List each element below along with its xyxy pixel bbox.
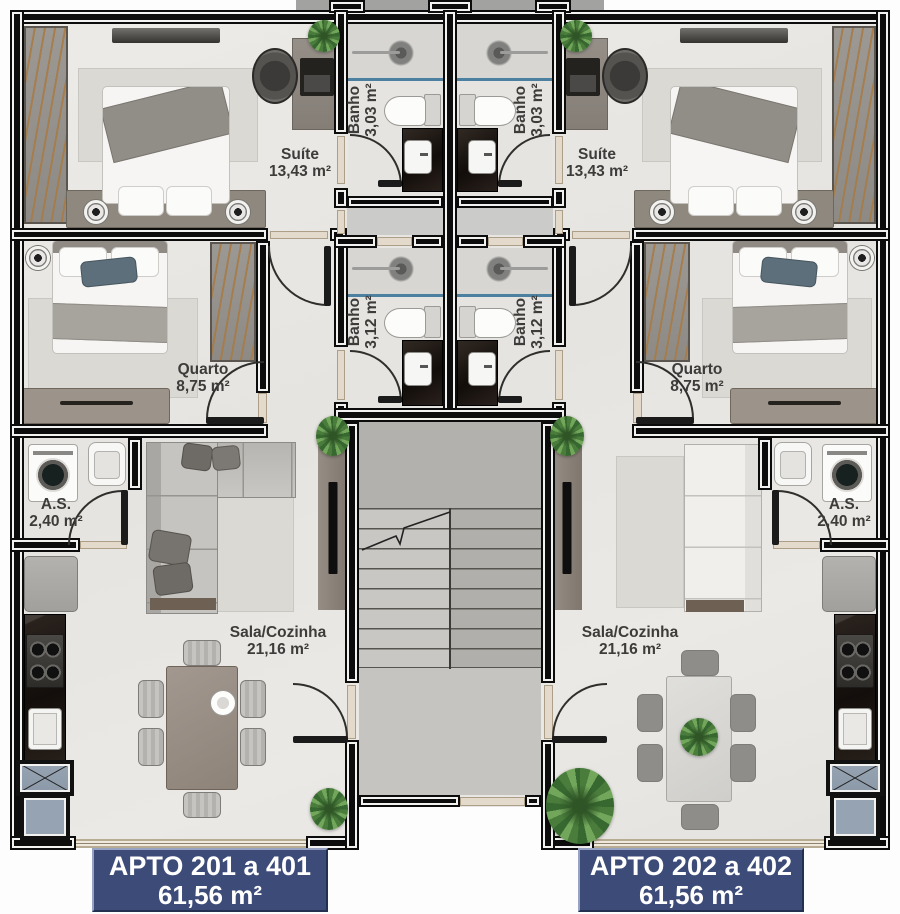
door-threshold xyxy=(572,231,630,239)
badge-area: 61,56 m² xyxy=(580,882,802,909)
door-leaf xyxy=(324,246,331,306)
wall xyxy=(552,235,566,347)
utility-shaft xyxy=(826,760,884,796)
wall xyxy=(457,235,488,248)
shower-rod xyxy=(500,51,548,54)
throw-pillow xyxy=(211,445,241,472)
door-threshold xyxy=(555,210,563,234)
room-name: Banho xyxy=(346,272,363,372)
wall xyxy=(345,740,359,850)
sofa-right xyxy=(684,444,762,612)
washing-machine xyxy=(28,444,78,502)
table-centerpiece xyxy=(210,690,236,716)
wall-shelf xyxy=(112,28,220,43)
badge-area: 61,56 m² xyxy=(94,882,326,909)
toilet-tank xyxy=(424,306,441,338)
sofa-base xyxy=(150,598,216,610)
wardrobe xyxy=(644,242,690,362)
room-label-banho2-left: Banho 3,12 m² xyxy=(346,272,386,372)
utility-shaft-window xyxy=(20,794,70,840)
shower-rod xyxy=(500,267,548,270)
dining-chair xyxy=(138,728,164,766)
wall xyxy=(334,408,566,422)
room-area: 8,75 m² xyxy=(637,378,757,395)
office-chair xyxy=(602,48,648,104)
wardrobe xyxy=(210,242,256,362)
dining-chair xyxy=(730,694,756,732)
door-leaf xyxy=(378,180,402,187)
floor-plant xyxy=(550,416,584,456)
room-label-sala-right: Sala/Cozinha 21,16 m² xyxy=(550,624,710,659)
wall xyxy=(632,228,890,241)
wall xyxy=(10,228,268,241)
floor-plan: Suíte 13,43 m² Banho 3,03 m² Banho 3,03 … xyxy=(0,0,900,914)
bathroom-sink xyxy=(404,352,432,386)
wall xyxy=(412,235,443,248)
door-leaf xyxy=(569,246,576,306)
laundry-sink xyxy=(774,442,812,486)
stair-steps-right-flight xyxy=(450,508,541,668)
bathroom-sink xyxy=(468,140,496,174)
wall xyxy=(128,438,142,490)
room-area: 3,12 m² xyxy=(529,272,546,372)
room-area: 3,03 m² xyxy=(363,60,380,160)
floor-plant xyxy=(310,788,348,830)
wall xyxy=(523,235,566,248)
kitchen-sink xyxy=(838,708,872,750)
wall xyxy=(632,424,890,438)
shower-rod xyxy=(352,267,400,270)
room-label-suite-left: Suíte 13,43 m² xyxy=(240,146,360,181)
bedside-lamp xyxy=(26,246,50,270)
pillow xyxy=(688,186,734,216)
utility-shaft-window xyxy=(830,794,880,840)
rug-living-right xyxy=(616,456,684,608)
tv-panel xyxy=(552,446,582,610)
bedside-lamp xyxy=(84,200,108,224)
washing-machine xyxy=(822,444,872,502)
bedside-lamp xyxy=(650,200,674,224)
wall xyxy=(443,10,457,412)
wall xyxy=(758,438,772,490)
room-name: Banho xyxy=(512,272,529,372)
dining-chair xyxy=(240,680,266,718)
dining-chair xyxy=(240,728,266,766)
stove-cooktop xyxy=(836,634,874,688)
blanket xyxy=(102,86,230,163)
bed-bedroom-left xyxy=(52,240,168,354)
wardrobe xyxy=(832,26,876,224)
room-label-quarto-right: Quarto 8,75 m² xyxy=(637,361,757,396)
window-band xyxy=(594,839,824,848)
bedside-lamp xyxy=(792,200,816,224)
tv-panel xyxy=(318,446,348,610)
door-leaf xyxy=(498,396,522,403)
wall xyxy=(347,196,443,208)
fridge xyxy=(822,556,876,612)
blanket xyxy=(52,303,168,343)
corridor-floor-right xyxy=(457,208,553,235)
window-band xyxy=(76,839,306,848)
apartment-badge-right: APTO 202 a 402 61,56 m² xyxy=(578,848,804,912)
room-label-banho1-right: Banho 3,03 m² xyxy=(512,60,552,160)
door-leaf xyxy=(206,417,264,424)
wall xyxy=(359,795,460,807)
dining-chair xyxy=(681,804,719,830)
dining-chair xyxy=(637,744,663,782)
door-leaf xyxy=(772,490,779,545)
room-label-as-left: A.S. 2,40 m² xyxy=(6,496,106,531)
wall xyxy=(10,424,268,438)
blanket xyxy=(670,86,798,163)
badge-title: APTO 202 a 402 xyxy=(580,851,802,882)
floor-plant xyxy=(316,416,350,456)
entry-door-leaf xyxy=(552,736,607,743)
room-area: 13,43 m² xyxy=(240,163,360,180)
door-leaf xyxy=(636,417,694,424)
room-name: Sala/Cozinha xyxy=(550,624,710,641)
room-area: 21,16 m² xyxy=(198,641,358,658)
toilet-tank xyxy=(424,94,441,126)
room-name: A.S. xyxy=(794,496,894,513)
toilet xyxy=(384,96,426,126)
stair-landing-top xyxy=(359,422,541,508)
palm-plant xyxy=(546,768,614,844)
dining-chair xyxy=(637,694,663,732)
badge-title: APTO 201 a 401 xyxy=(94,851,326,882)
room-name: Sala/Cozinha xyxy=(198,624,358,641)
room-area: 3,12 m² xyxy=(363,272,380,372)
room-name: Banho xyxy=(346,60,363,160)
accent-pillow xyxy=(760,256,818,288)
bedside-lamp xyxy=(226,200,250,224)
room-area: 8,75 m² xyxy=(143,378,263,395)
room-label-suite-right: Suíte 13,43 m² xyxy=(537,146,657,181)
wall xyxy=(334,188,348,208)
stove-cooktop xyxy=(26,634,64,688)
room-label-sala-left: Sala/Cozinha 21,16 m² xyxy=(198,624,358,659)
room-area: 2,40 m² xyxy=(6,513,106,530)
dining-table-left xyxy=(166,666,238,790)
utility-shaft xyxy=(16,760,74,796)
sofa-base xyxy=(686,600,744,612)
laundry-sink xyxy=(88,442,126,486)
toilet xyxy=(384,308,426,338)
shower-rod xyxy=(352,51,400,54)
room-label-as-right: A.S. 2,40 m² xyxy=(794,496,894,531)
room-name: A.S. xyxy=(6,496,106,513)
laptop xyxy=(300,58,334,96)
door-leaf xyxy=(378,396,402,403)
table-plant xyxy=(680,718,718,756)
door-threshold xyxy=(337,210,345,234)
wall xyxy=(334,235,377,248)
room-area: 3,03 m² xyxy=(529,60,546,160)
wardrobe xyxy=(24,26,68,224)
corridor-floor-left xyxy=(347,208,443,235)
pillow xyxy=(166,186,212,216)
laptop xyxy=(566,58,600,96)
door-threshold xyxy=(555,350,563,400)
pillow xyxy=(736,186,782,216)
wall-shelf xyxy=(680,28,788,43)
room-name: Suíte xyxy=(537,146,657,163)
toilet xyxy=(474,308,516,338)
room-name: Quarto xyxy=(143,361,263,378)
bathroom-sink xyxy=(468,352,496,386)
exterior-below-stairs xyxy=(359,807,541,850)
room-name: Quarto xyxy=(637,361,757,378)
room-area: 21,16 m² xyxy=(550,641,710,658)
dining-chair xyxy=(730,744,756,782)
kitchen-sink xyxy=(28,708,62,750)
door-leaf xyxy=(498,180,522,187)
wall xyxy=(525,795,541,807)
room-label-banho1-left: Banho 3,03 m² xyxy=(346,60,386,160)
door-threshold xyxy=(337,350,345,400)
apartment-badge-left: APTO 201 a 401 61,56 m² xyxy=(92,848,328,912)
pillow xyxy=(118,186,164,216)
room-label-quarto-left: Quarto 8,75 m² xyxy=(143,361,263,396)
room-label-banho2-right: Banho 3,12 m² xyxy=(512,272,552,372)
blanket xyxy=(732,303,848,343)
door-leaf xyxy=(121,490,128,545)
fridge xyxy=(24,556,78,612)
bedside-lamp xyxy=(850,246,874,270)
room-name: Suíte xyxy=(240,146,360,163)
throw-pillow xyxy=(180,442,213,472)
office-chair xyxy=(252,48,298,104)
entry-door-threshold xyxy=(347,685,356,739)
desk-plant xyxy=(308,20,340,52)
door-threshold xyxy=(377,237,412,246)
toilet xyxy=(474,96,516,126)
entry-door-leaf xyxy=(293,736,348,743)
wall xyxy=(457,196,553,208)
room-area: 13,43 m² xyxy=(537,163,657,180)
room-area: 2,40 m² xyxy=(794,513,894,530)
dining-chair xyxy=(183,792,221,818)
dining-chair xyxy=(138,680,164,718)
desk-plant xyxy=(560,20,592,52)
bathroom-sink xyxy=(404,140,432,174)
accent-pillow xyxy=(80,256,138,288)
stair-break-line xyxy=(360,500,455,556)
wall xyxy=(552,188,566,208)
door-threshold xyxy=(270,231,328,239)
bed-bedroom-right xyxy=(732,240,848,354)
throw-pillow xyxy=(152,562,194,597)
door-threshold xyxy=(488,237,523,246)
stair-door-threshold xyxy=(460,797,525,806)
room-name: Banho xyxy=(512,60,529,160)
